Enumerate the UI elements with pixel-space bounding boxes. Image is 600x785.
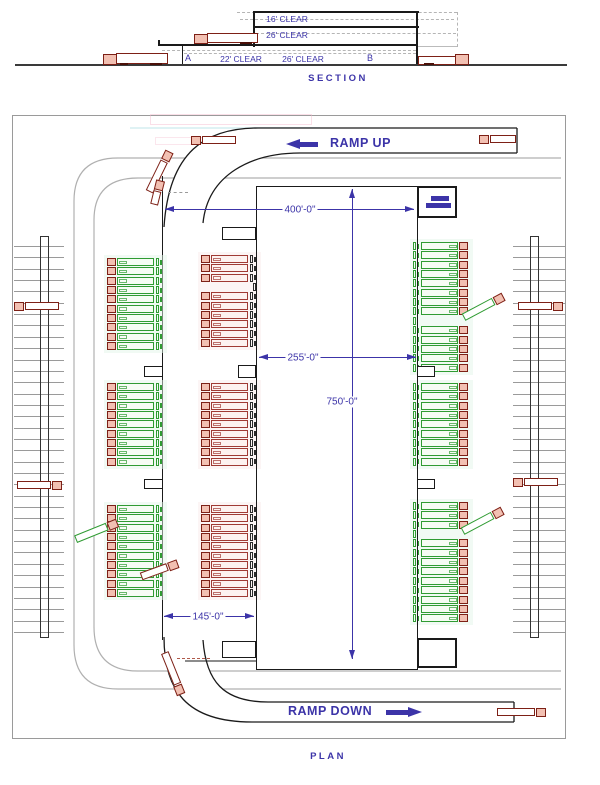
trailer-detail	[119, 592, 127, 596]
stall-dock-tick	[160, 334, 162, 339]
trailer-detail	[213, 517, 221, 521]
parking-stall	[413, 511, 468, 519]
ladder-rung	[14, 473, 64, 474]
parking-stall	[413, 402, 468, 410]
truck-wheels	[240, 42, 252, 44]
truck-trailer	[211, 302, 248, 310]
truck-trailer	[117, 430, 154, 438]
truck-trailer	[421, 539, 458, 547]
dim-arrow	[405, 206, 414, 212]
section-ground-line	[15, 64, 567, 66]
ladder-rung	[513, 348, 565, 349]
ladder-rung	[513, 314, 565, 315]
truck-cab	[201, 458, 210, 466]
truck-trailer	[421, 596, 458, 604]
wall-notch	[144, 479, 163, 489]
trailer-detail	[449, 347, 457, 351]
ladder-rung	[14, 575, 64, 576]
trailer-detail	[449, 310, 457, 314]
stair-symbol-bar	[431, 196, 449, 201]
truck-trailer	[421, 577, 458, 585]
parking-stall	[413, 411, 468, 419]
stall-dock-tick	[250, 542, 253, 550]
dim-core-width-text: 255'-0"	[285, 353, 320, 364]
ladder-rung	[14, 428, 64, 429]
truck-cab	[459, 558, 468, 566]
truck-trailer	[421, 279, 458, 287]
truck-trailer	[211, 430, 248, 438]
trailer-detail	[449, 329, 457, 333]
truck-cab	[107, 589, 116, 597]
parking-stall	[107, 420, 162, 428]
parking-stall	[413, 289, 468, 297]
truck	[479, 134, 517, 144]
stall-dock-tick	[250, 580, 253, 588]
truck-cab	[459, 549, 468, 557]
truck-cab	[107, 533, 116, 541]
stall-dock-tick	[160, 535, 162, 540]
parking-stall	[413, 458, 468, 466]
stall-dock-tick	[250, 533, 253, 541]
stall-dock-tick	[250, 458, 253, 466]
trailer-detail	[449, 395, 457, 399]
truck-trailer	[421, 383, 458, 391]
dim-core-length-text: 750'-0"	[324, 397, 359, 408]
trailer-detail	[119, 432, 127, 436]
section-mid-deck-line	[160, 44, 418, 46]
stall-dock-tick	[250, 392, 253, 400]
stall-dock-tick	[160, 288, 162, 293]
parking-stall	[413, 345, 468, 353]
parking-stall	[413, 558, 468, 566]
trailer-detail	[119, 526, 127, 530]
parking-stall	[413, 549, 468, 557]
parking-stall	[201, 330, 256, 338]
parking-stall	[413, 242, 468, 250]
truck-cab	[201, 274, 210, 282]
truck-cab	[459, 596, 468, 604]
parking-stall	[201, 320, 256, 328]
truck-cab	[459, 420, 468, 428]
trailer-detail	[449, 291, 457, 295]
truck-trailer	[202, 136, 236, 144]
stall-dock-tick	[250, 448, 253, 456]
ladder-rung	[513, 280, 565, 281]
stall-dock-tick	[250, 561, 253, 569]
stall-dock-tick	[156, 323, 159, 331]
parking-stall	[201, 570, 256, 578]
truck-trailer	[161, 651, 181, 686]
trailer-detail	[449, 245, 457, 249]
trailer-detail	[119, 270, 127, 274]
truck-trailer	[421, 586, 458, 594]
truck-cab	[153, 179, 164, 191]
truck-cab	[459, 577, 468, 585]
stall-dock-tick	[156, 392, 159, 400]
wall-notch	[222, 227, 256, 240]
truck-trailer	[211, 402, 248, 410]
stall-dock-tick	[156, 439, 159, 447]
truck-cab	[107, 402, 116, 410]
truck-trailer	[117, 295, 154, 303]
stall-dock-tick	[250, 411, 253, 419]
ladder-rung	[513, 541, 565, 542]
truck-trailer	[117, 333, 154, 341]
dim-arrow	[165, 206, 174, 212]
ladder-rung	[14, 360, 64, 361]
truck-trailer	[117, 277, 154, 285]
stall-dock-tick	[156, 589, 159, 597]
truck-cab	[201, 580, 210, 588]
trailer-detail	[119, 414, 127, 418]
parking-stall	[413, 354, 468, 362]
truck-trailer	[117, 323, 154, 331]
dim-arrow	[349, 189, 355, 198]
truck-cab	[201, 552, 210, 560]
truck-cab	[459, 336, 468, 344]
truck	[14, 301, 60, 311]
truck-cab	[201, 430, 210, 438]
truck-trailer	[421, 614, 458, 622]
truck-cab	[201, 570, 210, 578]
dim-arrow	[259, 354, 268, 360]
truck	[496, 707, 546, 717]
ladder-rung	[14, 552, 64, 553]
truck-cab	[459, 279, 468, 287]
ladder-rung	[14, 382, 64, 383]
truck-trailer	[421, 354, 458, 362]
ladder-rung	[14, 257, 64, 258]
truck-cab	[201, 311, 210, 319]
dim-arrow	[164, 613, 173, 619]
trailer-detail	[213, 564, 221, 568]
truck-cab	[107, 323, 116, 331]
truck-trailer	[421, 549, 458, 557]
parking-stall	[201, 420, 256, 428]
section-view: 16' CLEAR 26' CLEAR A 22' CLEAR 26' CLEA…	[0, 0, 600, 100]
ladder-rung	[14, 394, 64, 395]
truck-cab	[459, 511, 468, 519]
truck-cab	[201, 589, 210, 597]
parking-stall	[413, 326, 468, 334]
trailer-detail	[449, 442, 457, 446]
trailer-detail	[213, 295, 221, 299]
stall-dock-tick	[160, 441, 162, 446]
truck-trailer	[421, 251, 458, 259]
ladder-rung	[513, 609, 565, 610]
parking-stall	[201, 542, 256, 550]
truck-trailer	[211, 330, 248, 338]
truck-trailer	[421, 326, 458, 334]
truck-trailer	[211, 311, 248, 319]
truck-trailer	[421, 270, 458, 278]
truck-cab	[107, 580, 116, 588]
dim-overall-width-text: 400'-0"	[282, 205, 317, 216]
dim-arrow	[245, 613, 254, 619]
truck-trailer	[117, 448, 154, 456]
parking-stall	[413, 279, 468, 287]
stair-core-top	[417, 186, 457, 218]
ladder-rung	[14, 416, 64, 417]
empty-stall	[201, 283, 256, 291]
truck-trailer	[421, 458, 458, 466]
parking-stall	[413, 336, 468, 344]
truck-cab	[174, 683, 186, 696]
trailer-detail	[449, 570, 457, 574]
truck-cab	[459, 448, 468, 456]
parking-stall	[413, 596, 468, 604]
ladder-rung	[14, 621, 64, 622]
ladder-rung	[14, 462, 64, 463]
truck-cab	[459, 605, 468, 613]
truck-trailer	[25, 302, 59, 310]
trailer-detail	[449, 414, 457, 418]
stall-dock-tick	[156, 333, 159, 341]
parking-stall	[413, 586, 468, 594]
stall-dock-tick	[156, 505, 159, 513]
ladder-rung	[513, 416, 565, 417]
trailer-detail	[213, 554, 221, 558]
wall-notch	[222, 641, 256, 658]
trailer-detail	[213, 323, 221, 327]
ladder-rung	[14, 450, 64, 451]
parking-stall	[201, 292, 256, 300]
truck-trailer	[211, 255, 248, 263]
trailer-detail	[119, 335, 127, 339]
truck-cab	[107, 458, 116, 466]
truck-cab	[201, 320, 210, 328]
parking-stall	[201, 580, 256, 588]
parking-stall	[107, 342, 162, 350]
trailer-detail	[449, 551, 457, 555]
trailer-detail	[119, 298, 127, 302]
parking-stall	[201, 514, 256, 522]
trailer-detail	[449, 589, 457, 593]
stall-dock-tick	[160, 422, 162, 427]
truck-cab	[459, 345, 468, 353]
truck-cab	[201, 524, 210, 532]
parking-stall	[107, 286, 162, 294]
truck-cab	[52, 481, 62, 490]
stall-dock-tick	[250, 505, 253, 513]
trailer-detail	[449, 514, 457, 518]
truck-cab	[459, 458, 468, 466]
truck-trailer	[421, 511, 458, 519]
stall-dock-tick	[250, 274, 253, 282]
ladder-rung	[14, 587, 64, 588]
trailer-detail	[213, 526, 221, 530]
trailer-detail	[449, 505, 457, 509]
ladder-rail	[530, 236, 539, 638]
truck-trailer	[211, 514, 248, 522]
stall-dock-tick	[156, 524, 159, 532]
ladder-rung	[513, 405, 565, 406]
truck-cab	[107, 505, 116, 513]
ladder-rung	[14, 371, 64, 372]
wall-notch	[417, 479, 435, 489]
stall-dock-tick	[160, 403, 162, 408]
ladder-rung	[513, 587, 565, 588]
parking-stall	[201, 255, 256, 263]
truck-trailer	[421, 261, 458, 269]
trailer-detail	[119, 317, 127, 321]
parking-stall	[201, 430, 256, 438]
trailer-detail	[119, 508, 127, 512]
parking-stall	[107, 323, 162, 331]
dim-apron-width-text: 145'-0"	[190, 612, 225, 623]
truck-trailer	[117, 420, 154, 428]
truck-trailer	[421, 298, 458, 306]
ladder-rung	[14, 348, 64, 349]
truck-cab	[194, 34, 208, 44]
trailer-detail	[449, 523, 457, 527]
trailer-detail	[449, 338, 457, 342]
truck-trailer	[421, 392, 458, 400]
truck-trailer	[117, 458, 154, 466]
trailer-detail	[213, 414, 221, 418]
truck	[517, 301, 563, 311]
parking-stall	[413, 298, 468, 306]
truck-cab	[107, 342, 116, 350]
truck-cab	[459, 392, 468, 400]
stall-dock-tick	[156, 295, 159, 303]
truck-cab	[107, 439, 116, 447]
truck-cab	[479, 135, 489, 144]
trailer-detail	[449, 460, 457, 464]
trailer-detail	[213, 432, 221, 436]
ladder-rung	[14, 541, 64, 542]
truck-trailer	[211, 589, 248, 597]
stall-dock-tick	[156, 542, 159, 550]
truck-trailer	[421, 411, 458, 419]
ladder-rung	[513, 507, 565, 508]
trailer-detail	[119, 536, 127, 540]
stall-dock-tick	[250, 439, 253, 447]
stall-dock-tick	[160, 385, 162, 390]
wall-notch	[144, 366, 163, 377]
truck-trailer	[421, 289, 458, 297]
truck-cab	[459, 439, 468, 447]
ladder-rung	[14, 246, 64, 247]
stall-dock-tick	[250, 311, 253, 319]
parking-stall	[413, 270, 468, 278]
stall-dock-tick	[160, 525, 162, 530]
truck-cab	[455, 54, 469, 65]
parking-stall	[107, 258, 162, 266]
truck-trailer	[117, 542, 154, 550]
truck-trailer	[117, 439, 154, 447]
parking-stall	[107, 580, 162, 588]
ladder-rung	[513, 257, 565, 258]
parking-stall	[107, 552, 162, 560]
truck-trailer	[421, 521, 458, 529]
bay-b-label: B	[367, 53, 373, 63]
truck-trailer	[211, 420, 248, 428]
truck-trailer	[211, 264, 248, 272]
truck-trailer	[421, 420, 458, 428]
parking-stall	[107, 458, 162, 466]
parking-stall	[201, 505, 256, 513]
stall-dock-tick	[250, 339, 253, 347]
truck-trailer	[211, 458, 248, 466]
ladder-rung	[513, 598, 565, 599]
truck-cab	[459, 586, 468, 594]
truck-trailer	[211, 448, 248, 456]
stall-dock-tick	[160, 581, 162, 586]
truck-cab	[191, 136, 201, 145]
truck-trailer	[211, 411, 248, 419]
stall-dock-tick	[156, 552, 159, 560]
stall-dock-tick	[156, 430, 159, 438]
truck-trailer	[117, 258, 154, 266]
stall-dock-tick	[160, 297, 162, 302]
stall-dock-tick	[250, 420, 253, 428]
trailer-detail	[119, 261, 127, 265]
truck-cab	[107, 333, 116, 341]
clearance-26-upper-label: 26' CLEAR	[266, 30, 308, 40]
ladder-rung	[14, 564, 64, 565]
truck-cab	[107, 305, 116, 313]
truck-cab	[201, 292, 210, 300]
empty-stall	[413, 317, 468, 325]
truck-trailer	[117, 286, 154, 294]
truck-cab	[201, 514, 210, 522]
clearance-22-label: 22' CLEAR	[220, 54, 262, 64]
ladder-rung	[14, 439, 64, 440]
stall-dock-tick	[156, 448, 159, 456]
truck-trailer	[117, 383, 154, 391]
truck-cab	[201, 264, 210, 272]
truck-cab	[107, 295, 116, 303]
ladder-rung	[513, 473, 565, 474]
trailer-detail	[449, 366, 457, 370]
truck-trailer	[211, 542, 248, 550]
truck-cab	[107, 411, 116, 419]
truck-trailer	[211, 339, 248, 347]
ladder-rung	[513, 337, 565, 338]
stall-dock-tick	[156, 277, 159, 285]
trailer-detail	[213, 404, 221, 408]
wall-notch	[238, 365, 256, 378]
truck-trailer	[117, 314, 154, 322]
parking-stall	[201, 448, 256, 456]
truck-cab	[459, 567, 468, 575]
truck-trailer	[117, 305, 154, 313]
ladder-rung	[513, 518, 565, 519]
ladder-rung	[513, 394, 565, 395]
trailer-detail	[213, 442, 221, 446]
trailer-detail	[449, 282, 457, 286]
truck-trailer	[117, 533, 154, 541]
clearance-16-label: 16' CLEAR	[266, 14, 308, 24]
truck-trailer	[524, 478, 558, 486]
truck-trailer	[211, 561, 248, 569]
stall-dock-tick	[160, 544, 162, 549]
trailer-detail	[213, 342, 221, 346]
truck-trailer	[117, 589, 154, 597]
truck-trailer	[117, 505, 154, 513]
trailer-detail	[449, 301, 457, 305]
parking-stall	[413, 605, 468, 613]
truck-wheels	[150, 63, 162, 65]
stall-dock-tick	[250, 320, 253, 328]
truck-cab	[459, 402, 468, 410]
trailer-detail	[213, 386, 221, 390]
ladder-rung	[14, 314, 64, 315]
parking-stall	[107, 383, 162, 391]
truck-trailer	[421, 242, 458, 250]
truck-trailer	[421, 502, 458, 510]
